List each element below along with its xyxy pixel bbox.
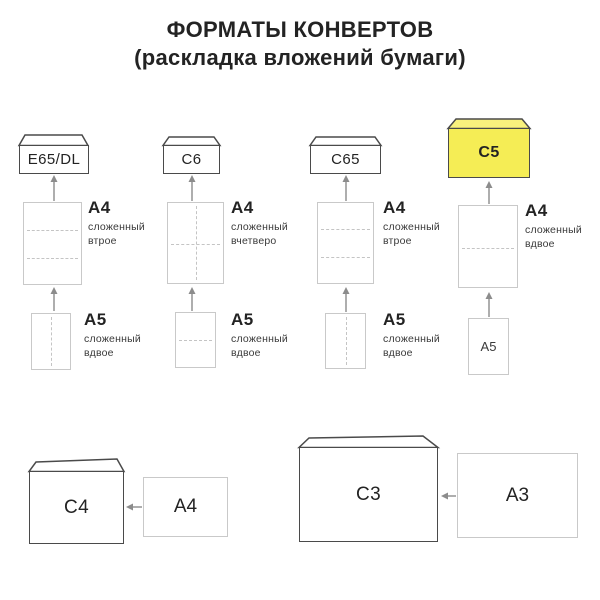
format-code: A5	[231, 310, 288, 330]
envelope-c4: C4	[29, 471, 124, 544]
envelope-flap	[299, 436, 438, 448]
fold-line	[171, 244, 220, 245]
sheet-a4-fold-quarters	[167, 202, 224, 284]
arrow-up-head-icon	[51, 175, 58, 182]
a4-label: A4 сложенный втрое	[383, 198, 440, 248]
arrow-up-head-icon	[51, 287, 58, 294]
sheet-a4-fold-half	[458, 205, 518, 288]
format-code: A5	[383, 310, 440, 330]
envelope-formats-infographic: ФОРМАТЫ КОНВЕРТОВ (раскладка вложений бу…	[0, 0, 600, 600]
sheet-a4-fold-thirds	[23, 202, 82, 285]
arrow-up-head-icon	[189, 287, 196, 294]
a4-label: A4 сложенный вчетверо	[231, 198, 288, 248]
format-code: A5	[84, 310, 141, 330]
format-code: A4	[383, 198, 440, 218]
arrow-up-head-icon	[486, 292, 493, 299]
sheet-a3: A3	[457, 453, 578, 538]
sheet-a5-fold-half	[175, 312, 216, 368]
a4-label: A4 сложенный вдвое	[525, 201, 582, 251]
arrow-up-head-icon	[189, 175, 196, 182]
arrow-up-head-icon	[343, 287, 350, 294]
sheet-a5-fold-half	[31, 313, 71, 370]
sheet-a5: A5	[468, 318, 509, 375]
envelope-flap	[19, 135, 88, 146]
fold-description: сложенный вдвое	[383, 333, 440, 360]
fold-description: сложенный вдвое	[231, 333, 288, 360]
fold-description: сложенный вдвое	[525, 224, 582, 251]
fold-line	[27, 258, 78, 259]
envelope-e65dl: E65/DL	[19, 145, 89, 174]
fold-line	[196, 206, 197, 280]
arrow-left-head-icon	[441, 493, 448, 500]
fold-line	[27, 230, 78, 231]
envelope-c3: C3	[299, 447, 438, 542]
fold-line	[346, 317, 347, 365]
envelope-c6: C6	[163, 145, 220, 174]
a4-label: A4 сложенный втрое	[88, 198, 145, 248]
format-code: A4	[231, 198, 288, 218]
a5-label: A5 сложенный вдвое	[383, 310, 440, 360]
fold-line	[51, 317, 52, 366]
arrow-left-head-icon	[126, 504, 133, 511]
fold-description: сложенный вдвое	[84, 333, 141, 360]
fold-description: сложенный втрое	[88, 221, 145, 248]
fold-line	[179, 340, 212, 341]
envelope-c5-highlighted: C5	[448, 128, 530, 178]
a5-label: A5 сложенный вдвое	[84, 310, 141, 360]
format-code: A4	[525, 201, 582, 221]
fold-line	[321, 229, 370, 230]
sheet-a5-fold-half	[325, 313, 366, 369]
sheet-a4: A4	[143, 477, 228, 537]
sheet-a4-fold-thirds	[317, 202, 374, 284]
fold-description: сложенный втрое	[383, 221, 440, 248]
fold-line	[321, 257, 370, 258]
envelope-flap	[29, 459, 124, 472]
format-code: A4	[88, 198, 145, 218]
fold-description: сложенный вчетверо	[231, 221, 288, 248]
fold-line	[462, 248, 514, 249]
arrow-up-head-icon	[486, 181, 493, 188]
envelope-c65: C65	[310, 145, 381, 174]
arrow-up-head-icon	[343, 175, 350, 182]
a5-label: A5 сложенный вдвое	[231, 310, 288, 360]
